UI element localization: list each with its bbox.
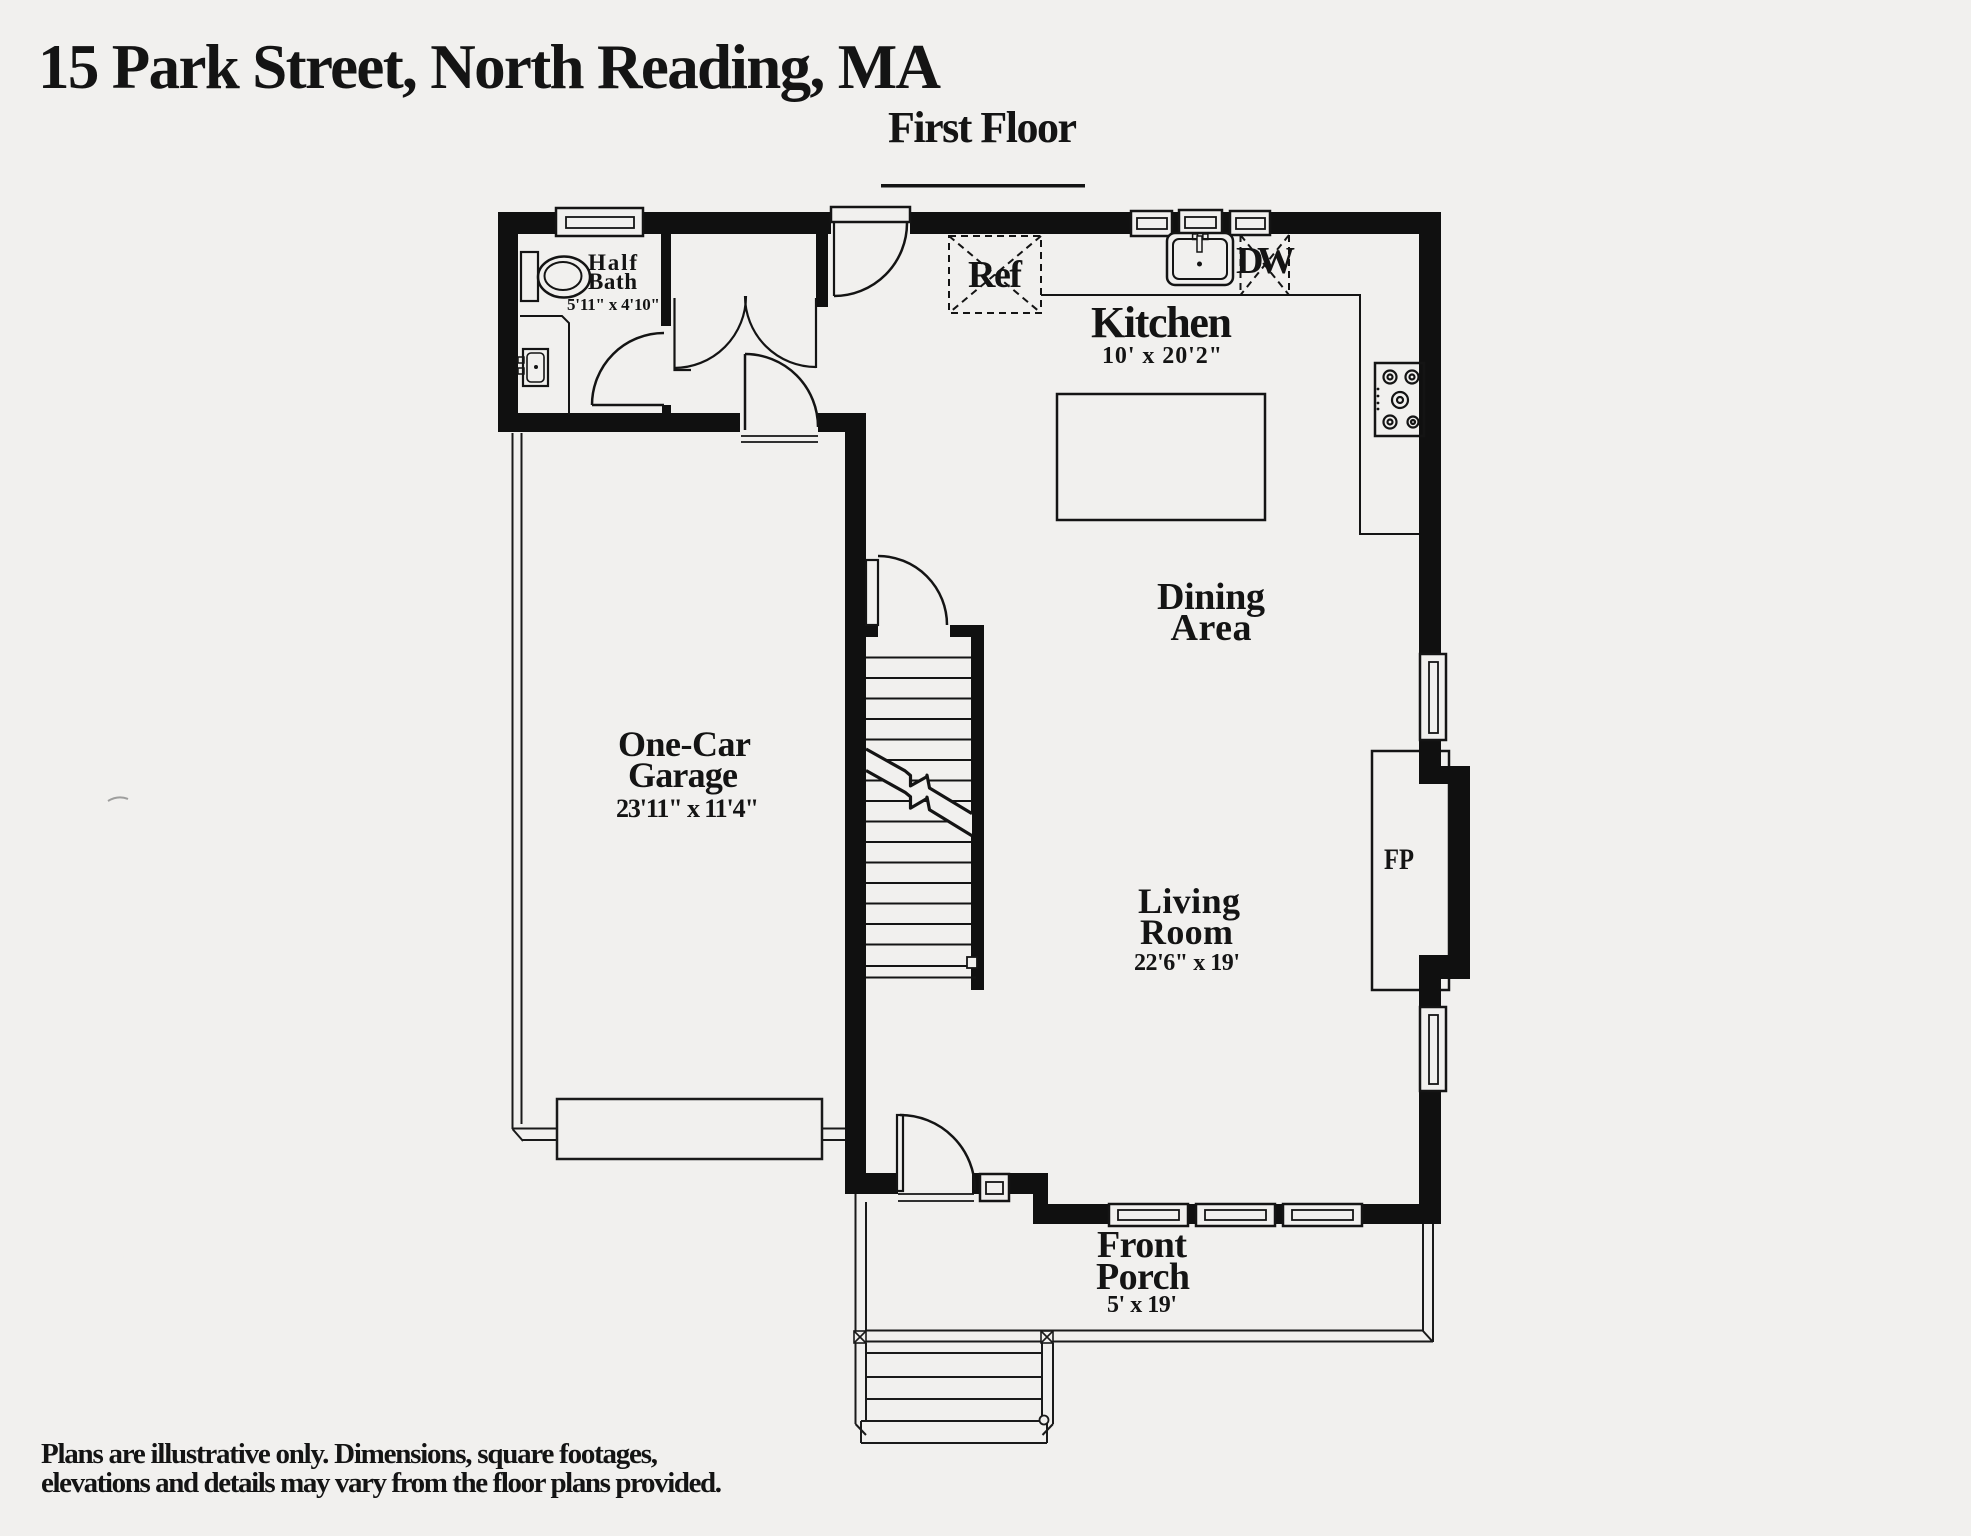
svg-text:Kitchen: Kitchen (1091, 298, 1232, 347)
svg-text:Room: Room (1140, 912, 1233, 952)
svg-text:Area: Area (1171, 607, 1252, 649)
svg-text:First Floor: First Floor (888, 103, 1077, 152)
svg-text:22'6" x 19': 22'6" x 19' (1134, 950, 1240, 976)
svg-text:elevations and details may var: elevations and details may vary from the… (41, 1467, 722, 1499)
svg-text:Garage: Garage (628, 755, 738, 795)
svg-text:DW: DW (1236, 240, 1295, 282)
svg-text:Plans are illustrative only. D: Plans are illustrative only. Dimensions,… (41, 1438, 658, 1470)
svg-text:23'11" x 11'4": 23'11" x 11'4" (616, 794, 759, 823)
svg-text:10' x 20'2": 10' x 20'2" (1102, 343, 1222, 369)
svg-text:Ref: Ref (968, 254, 1023, 296)
svg-text:15 Park Street, North Reading,: 15 Park Street, North Reading, MA (38, 32, 942, 102)
svg-text:5' x 19': 5' x 19' (1107, 1292, 1177, 1318)
svg-text:FP: FP (1384, 843, 1414, 876)
svg-text:5'11" x 4'10": 5'11" x 4'10" (567, 295, 660, 314)
svg-text:Bath: Bath (588, 269, 637, 294)
